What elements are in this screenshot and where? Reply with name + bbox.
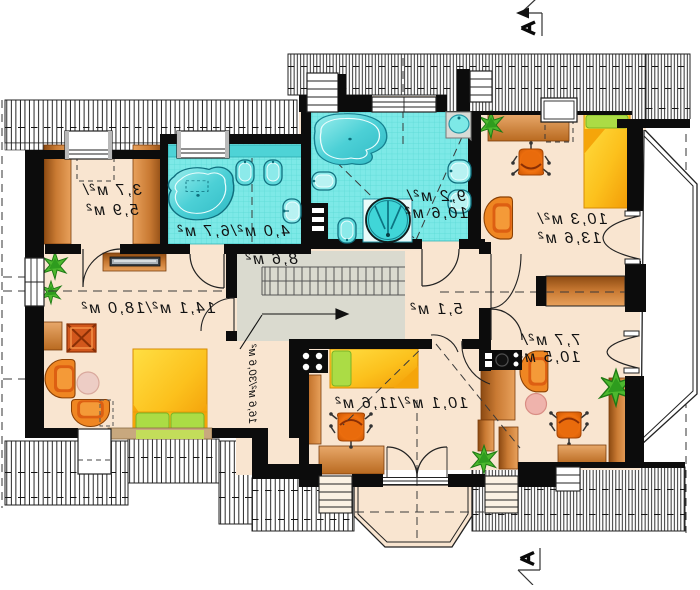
svg-text:9,2 м²/: 9,2 м²/ [406,188,466,205]
svg-text:3,7 м²/: 3,7 м²/ [82,182,142,199]
svg-text:5,9 м²: 5,9 м² [85,202,139,219]
svg-text:5,1 м²: 5,1 м² [409,301,463,318]
svg-text:7,7 м²/: 7,7 м²/ [521,332,581,349]
svg-text:16,6 м²/30,6 м²: 16,6 м²/30,6 м² [246,343,258,423]
svg-text:10,1 м²/11,6 м²: 10,1 м²/11,6 м² [334,395,468,412]
svg-text:10,6 м²: 10,6 м² [404,205,468,222]
svg-text:13,6 м²: 13,6 м² [537,230,601,247]
svg-text:10,5 м²: 10,5 м² [516,349,580,366]
svg-text:8,6 м²: 8,6 м² [244,251,298,268]
svg-text:14,1 м²/18,0 м²: 14,1 м²/18,0 м² [80,300,215,317]
svg-text:4,0 м²/6,7 м²: 4,0 м²/6,7 м² [176,223,290,240]
svg-text:10,3 м²/: 10,3 м²/ [537,211,608,228]
